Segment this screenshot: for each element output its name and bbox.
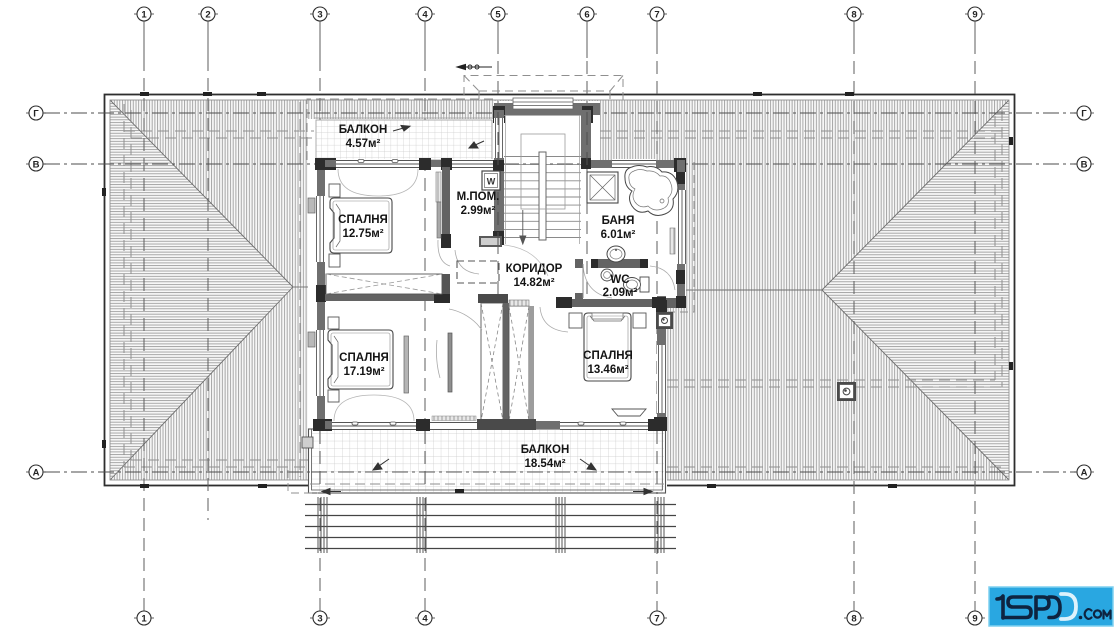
svg-text:18.54м²: 18.54м² (524, 458, 565, 470)
svg-text:СПАЛНЯ: СПАЛНЯ (583, 350, 633, 362)
svg-text:М.ПОМ.: М.ПОМ. (457, 191, 500, 203)
svg-text:13.46м²: 13.46м² (587, 364, 628, 376)
svg-text:2: 2 (205, 10, 210, 21)
svg-text:А: А (1081, 468, 1088, 479)
svg-text:4.57м²: 4.57м² (346, 138, 381, 150)
svg-text:7: 7 (654, 614, 659, 625)
svg-text:8: 8 (851, 614, 856, 625)
svg-text:4: 4 (422, 614, 428, 625)
svg-text:WC: WC (610, 274, 629, 286)
svg-text:2.99м²: 2.99м² (461, 205, 496, 217)
svg-text:А: А (33, 468, 40, 479)
svg-text:КОРИДОР: КОРИДОР (506, 263, 563, 275)
svg-text:3: 3 (317, 10, 322, 21)
svg-text:1: 1 (141, 614, 147, 625)
svg-text:В: В (33, 160, 40, 171)
svg-text:Г: Г (33, 109, 39, 120)
svg-text:СПАЛНЯ: СПАЛНЯ (338, 214, 388, 226)
svg-text:3: 3 (317, 614, 322, 625)
svg-text:17.19м²: 17.19м² (343, 366, 384, 378)
svg-text:СПАЛНЯ: СПАЛНЯ (339, 352, 389, 364)
svg-text:4: 4 (422, 10, 428, 21)
svg-text:12.75м²: 12.75м² (342, 228, 383, 240)
svg-text:2.09м²: 2.09м² (603, 287, 638, 299)
svg-text:9: 9 (972, 614, 977, 625)
svg-text:14.82м²: 14.82м² (513, 277, 554, 289)
svg-text:БАЛКОН: БАЛКОН (521, 444, 570, 456)
svg-text:6.01м²: 6.01м² (601, 229, 636, 241)
svg-text:7: 7 (654, 10, 659, 21)
svg-text:8: 8 (851, 10, 856, 21)
svg-text:БАНЯ: БАНЯ (602, 215, 635, 227)
svg-text:Г: Г (1081, 109, 1087, 120)
svg-text:БАЛКОН: БАЛКОН (339, 124, 388, 136)
svg-text:5: 5 (495, 10, 501, 21)
svg-text:6: 6 (584, 10, 589, 21)
svg-text:В: В (1081, 160, 1088, 171)
svg-text:9: 9 (972, 10, 977, 21)
svg-text:1: 1 (141, 10, 147, 21)
svg-text:W: W (487, 177, 496, 187)
